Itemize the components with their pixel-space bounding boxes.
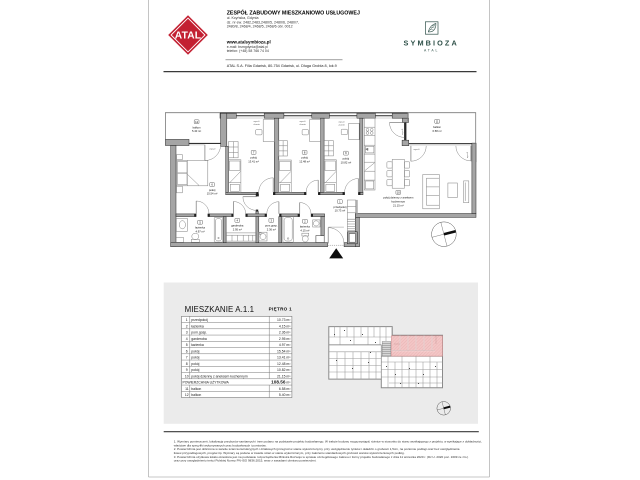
svg-text:5.40 m²: 5.40 m² xyxy=(192,129,201,133)
svg-text:SYMBIOZA: SYMBIOZA xyxy=(404,38,459,47)
svg-text:łazienka: łazienka xyxy=(195,226,205,230)
svg-text:5.40 m²: 5.40 m² xyxy=(279,393,291,397)
svg-text:2480/8, 2468/4, 2468/5, 2468/6: 2480/8, 2468/4, 2468/5, 2468/6 obr. 0012 xyxy=(227,24,293,28)
svg-text:1: 1 xyxy=(186,318,188,322)
svg-text:ATAL: ATAL xyxy=(424,48,439,52)
svg-text:6.58 m²: 6.58 m² xyxy=(279,387,291,391)
svg-text:wys=0: wys=0 xyxy=(209,148,216,150)
svg-text:łazienka: łazienka xyxy=(191,324,204,328)
svg-text:9: 9 xyxy=(186,368,188,372)
svg-text:5: 5 xyxy=(186,343,188,347)
svg-text:2.95 m²: 2.95 m² xyxy=(233,228,242,232)
svg-text:ATAL: ATAL xyxy=(175,31,201,42)
svg-text:balkon: balkon xyxy=(193,125,201,129)
svg-text:łazienka: łazienka xyxy=(300,225,310,229)
svg-text:4.15 m²: 4.15 m² xyxy=(300,228,309,232)
svg-text:wys=0: wys=0 xyxy=(402,128,404,135)
svg-text:11: 11 xyxy=(185,387,189,391)
svg-text:108.56 m²: 108.56 m² xyxy=(271,380,291,385)
svg-text:pokój: pokój xyxy=(301,156,308,160)
svg-text:10.82 m²: 10.82 m² xyxy=(277,368,291,372)
svg-text:pom.gosp.: pom.gosp. xyxy=(191,331,207,335)
svg-text:4: 4 xyxy=(186,337,188,341)
svg-text:13.41 m²: 13.41 m² xyxy=(277,356,291,360)
svg-text:garderoba: garderoba xyxy=(231,224,244,228)
svg-text:telefon: (+48) 58 766 74 04: telefon: (+48) 58 766 74 04 xyxy=(227,49,269,53)
svg-text:balkon: balkon xyxy=(191,393,201,397)
svg-text:12.48 m²: 12.48 m² xyxy=(277,362,291,366)
svg-text:4.97 m²: 4.97 m² xyxy=(279,343,291,347)
svg-text:10: 10 xyxy=(185,374,189,378)
svg-text:pom.gosp.: pom.gosp. xyxy=(265,225,278,228)
svg-text:kuchennym: kuchennym xyxy=(391,199,406,203)
svg-text:MIESZKANIE A.1.1: MIESZKANIE A.1.1 xyxy=(185,305,255,314)
svg-text:przedpokój: przedpokój xyxy=(191,318,208,322)
svg-text:przedpokój: przedpokój xyxy=(333,205,347,209)
svg-text:4.97 m²: 4.97 m² xyxy=(196,229,205,233)
svg-text:12: 12 xyxy=(185,393,189,397)
svg-text:ATAL S.A. Filia Gdańsk, 80-754: ATAL S.A. Filia Gdańsk, 80-754 Gdańsk, u… xyxy=(227,64,337,68)
svg-text:pokój: pokój xyxy=(191,356,199,360)
svg-text:6: 6 xyxy=(186,349,188,353)
svg-text:2.36 m²: 2.36 m² xyxy=(267,228,276,232)
svg-text:8: 8 xyxy=(186,362,188,366)
svg-text:2.95 m²: 2.95 m² xyxy=(279,337,291,341)
svg-text:pokój: pokój xyxy=(191,349,199,353)
svg-text:balkon: balkon xyxy=(433,125,441,129)
svg-text:balkon: balkon xyxy=(191,387,201,391)
svg-text:wys=0: wys=0 xyxy=(467,151,469,158)
svg-text:7: 7 xyxy=(186,356,188,360)
svg-text:pokój dzienny z aneksem: pokój dzienny z aneksem xyxy=(383,196,414,200)
svg-text:10.73 m²: 10.73 m² xyxy=(277,318,291,322)
svg-text:13.41 m²: 13.41 m² xyxy=(248,160,259,164)
svg-text:4.15 m²: 4.15 m² xyxy=(279,324,291,328)
svg-text:15.54 m²: 15.54 m² xyxy=(207,192,218,196)
svg-text:2: 2 xyxy=(186,324,188,328)
svg-text:oraz przy uwzględnieniu treści: oraz przy uwzględnieniu treści Polskiej … xyxy=(174,459,317,463)
svg-text:pokój: pokój xyxy=(209,188,216,192)
svg-text:2.36 m²: 2.36 m² xyxy=(279,331,291,335)
svg-text:POWIERZCHNIA UŻYTKOWA: POWIERZCHNIA UŻYTKOWA xyxy=(183,380,230,385)
svg-text:pokój dzienny z aneksem kuchen: pokój dzienny z aneksem kuchennym xyxy=(191,374,248,378)
svg-text:+konstr: +konstr xyxy=(253,123,260,126)
svg-text:pokój: pokój xyxy=(191,362,199,366)
svg-text:6.58 m²: 6.58 m² xyxy=(433,129,442,133)
svg-text:12.48 m²: 12.48 m² xyxy=(299,160,310,164)
svg-text:pokój: pokój xyxy=(191,368,199,372)
svg-text:10.73 m²: 10.73 m² xyxy=(335,209,346,213)
svg-text:+konstr: +konstr xyxy=(299,123,306,126)
svg-text:garderoba: garderoba xyxy=(191,337,207,341)
svg-text:+konstr: +konstr xyxy=(338,123,345,126)
svg-text:3: 3 xyxy=(186,331,188,335)
svg-text:10.82 m²: 10.82 m² xyxy=(341,160,352,164)
svg-text:PIĘTRO 1: PIĘTRO 1 xyxy=(269,306,292,311)
svg-text:12: 12 xyxy=(195,120,198,124)
svg-text:pokój: pokój xyxy=(250,156,257,160)
svg-text:wys=0: wys=0 xyxy=(414,149,421,151)
svg-text:pokój: pokój xyxy=(343,157,350,161)
svg-text:www.atalsymbioza.pl: www.atalsymbioza.pl xyxy=(226,39,271,44)
svg-text:10: 10 xyxy=(397,190,400,194)
svg-text:łazienka: łazienka xyxy=(191,343,204,347)
svg-text:15.54 m²: 15.54 m² xyxy=(277,349,291,353)
svg-text:21.15 m²: 21.15 m² xyxy=(393,204,404,208)
svg-text:21.15 m²: 21.15 m² xyxy=(277,374,291,378)
